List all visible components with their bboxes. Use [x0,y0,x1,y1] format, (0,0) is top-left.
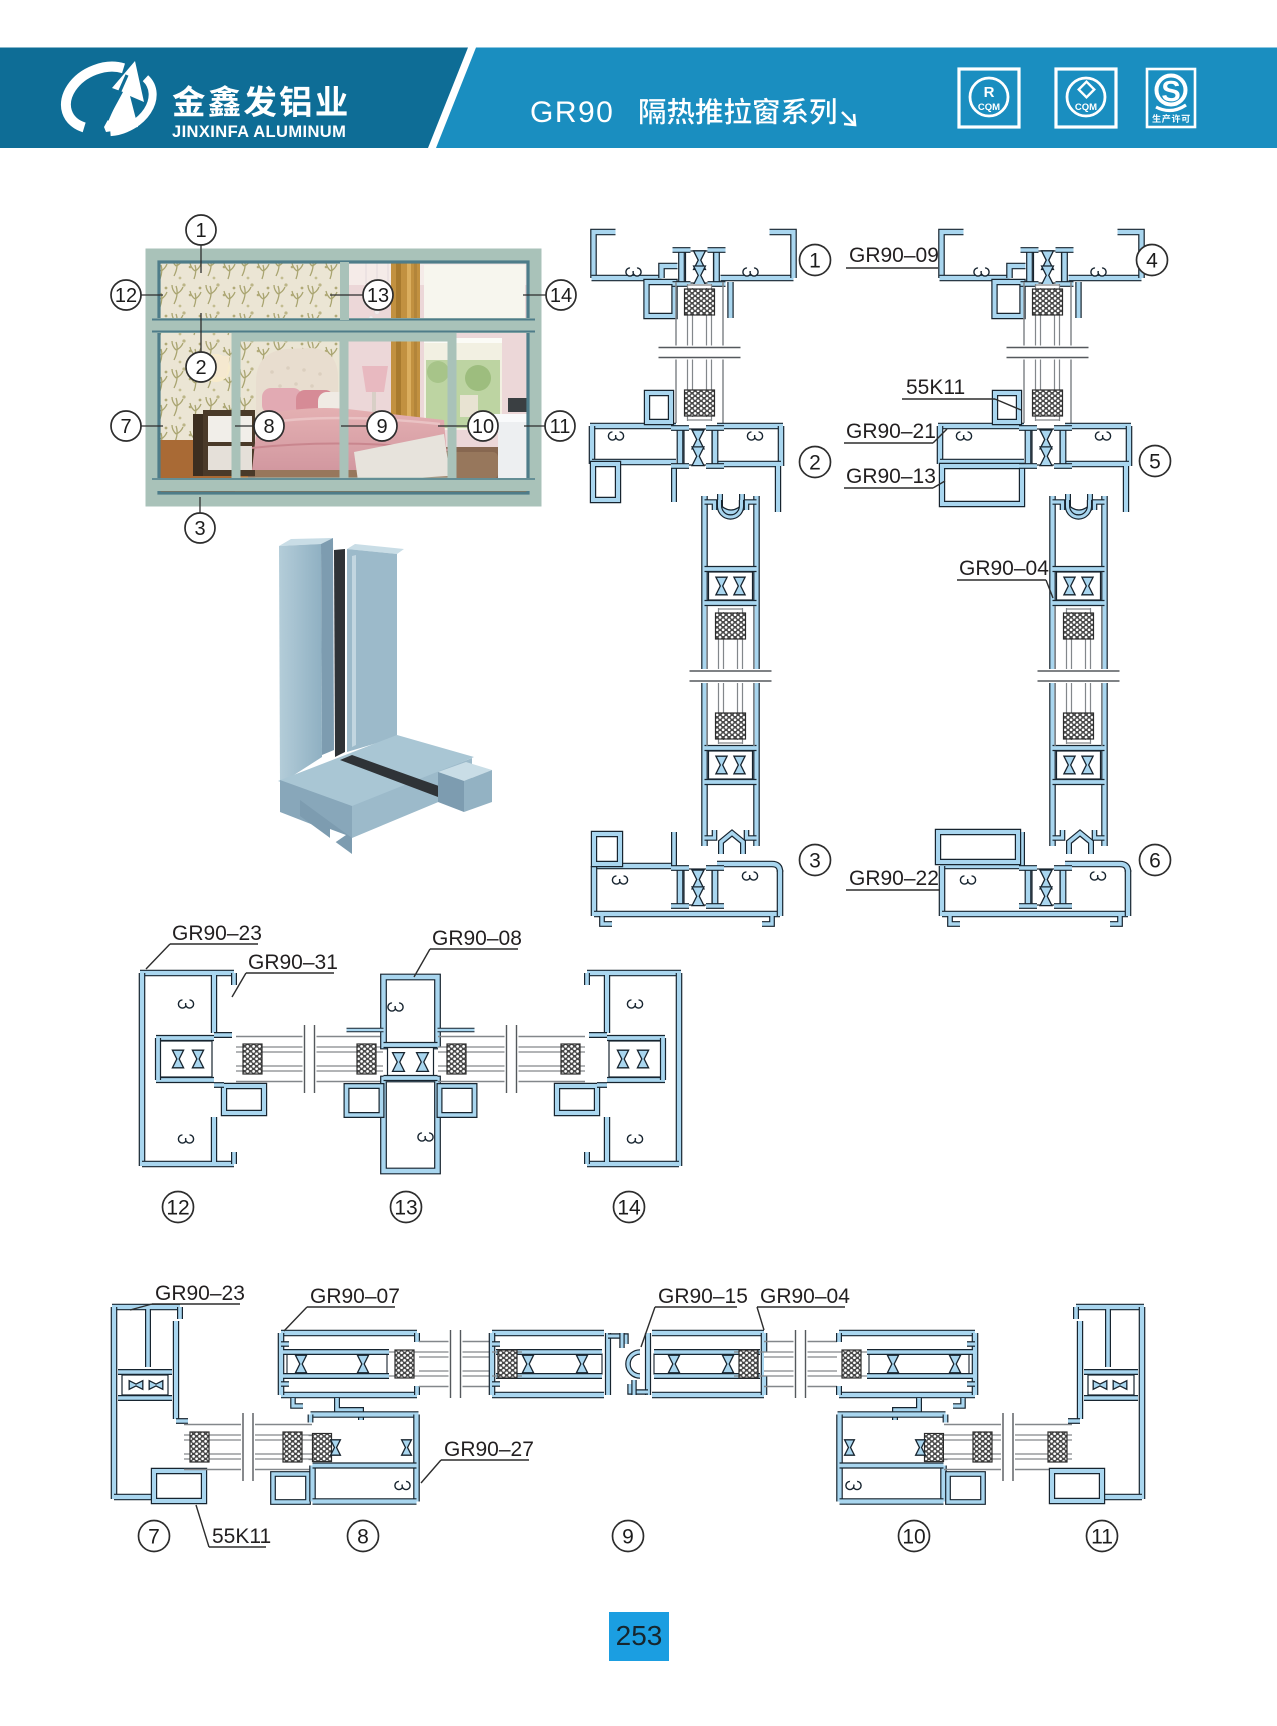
svg-text:8: 8 [263,416,274,438]
svg-text:9: 9 [622,1525,634,1548]
svg-text:2: 2 [809,451,821,474]
svg-text:10: 10 [472,416,494,438]
svg-text:253: 253 [616,1620,663,1651]
svg-text:GR90–27: GR90–27 [444,1438,534,1461]
svg-text:GR90–09: GR90–09 [849,244,939,267]
svg-text:7: 7 [148,1525,160,1548]
svg-text:S: S [1161,76,1180,108]
svg-text:GR90–15: GR90–15 [658,1285,748,1308]
svg-text:5: 5 [1149,450,1161,473]
svg-text:JINXINFA ALUMINUM: JINXINFA ALUMINUM [172,123,346,141]
svg-text:GR90–21: GR90–21 [846,420,936,443]
svg-text:GR90: GR90 [530,96,614,129]
svg-text:10: 10 [902,1525,925,1548]
svg-text:4: 4 [1146,249,1158,272]
svg-text:1: 1 [195,220,206,242]
svg-text:11: 11 [1091,1525,1113,1548]
svg-text:13: 13 [367,285,389,307]
svg-text:GR90–07: GR90–07 [310,1285,400,1308]
svg-text:55K11: 55K11 [906,376,965,399]
svg-text:12: 12 [166,1196,189,1219]
svg-text:13: 13 [394,1196,417,1219]
svg-text:11: 11 [550,416,571,438]
svg-text:7: 7 [120,416,131,438]
svg-text:GR90–31: GR90–31 [248,951,338,974]
svg-text:1: 1 [809,249,821,272]
svg-text:GR90–22: GR90–22 [849,867,939,890]
svg-text:3: 3 [809,849,821,872]
svg-text:55K11: 55K11 [212,1525,271,1548]
svg-text:R: R [984,84,995,101]
svg-text:CQM: CQM [978,102,1000,113]
svg-text:CQM: CQM [1075,102,1097,113]
svg-text:GR90–04: GR90–04 [760,1285,850,1308]
svg-text:GR90–13: GR90–13 [846,465,936,488]
svg-text:8: 8 [357,1525,369,1548]
svg-text:GR90–23: GR90–23 [155,1282,245,1305]
svg-text:6: 6 [1149,849,1161,872]
svg-text:9: 9 [376,416,387,438]
svg-text:GR90–04: GR90–04 [959,557,1049,580]
svg-text:GR90–08: GR90–08 [432,927,522,950]
svg-text:12: 12 [115,285,137,307]
svg-text:2: 2 [195,357,206,379]
svg-text:3: 3 [194,518,205,540]
svg-text:14: 14 [617,1196,641,1219]
svg-text:GR90–23: GR90–23 [172,922,262,945]
svg-text:14: 14 [550,285,572,307]
